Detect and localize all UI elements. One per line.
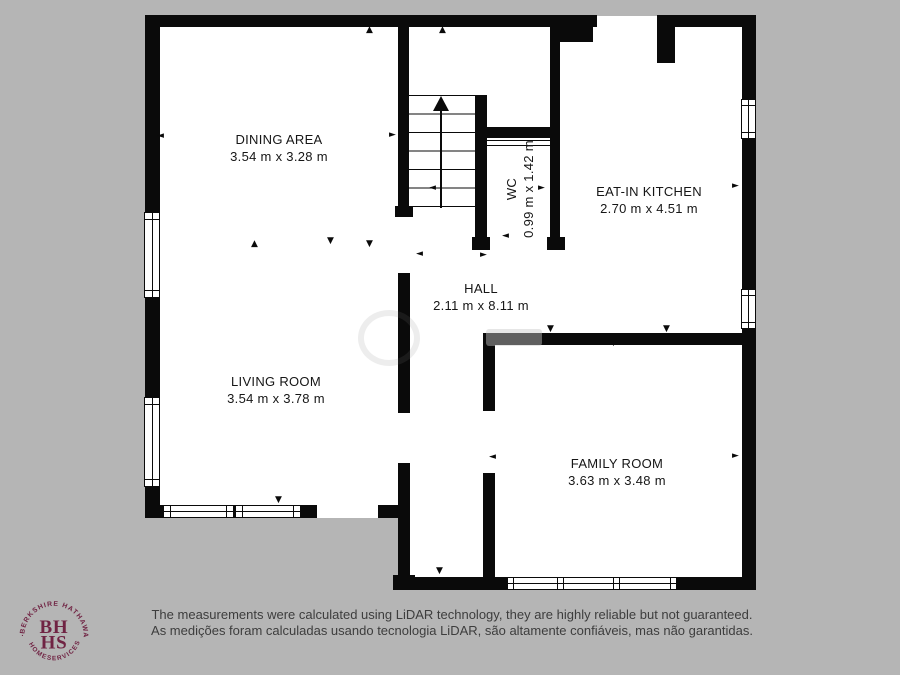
wall-wc-right [550,27,560,237]
interior-left-wing-door-gap [317,505,378,518]
opening-marker-down-icon: ▼ [366,240,373,249]
room-dimensions: 2.70 m x 4.51 m [596,200,702,217]
room-label-wc: WC 0.99 m x 1.42 m [503,140,537,238]
wall-wc-top [487,127,550,138]
wall-living-hall-divider-lower [398,463,410,577]
bhhs-logo: BERKSHIRE HATHAWAY HOMESERVICES · · BH H… [16,596,92,672]
room-name: HALL [433,280,529,297]
staircase [409,95,475,218]
room-label-living: LIVING ROOM 3.54 m x 3.78 m [227,373,325,407]
room-name: FAMILY ROOM [568,455,666,472]
room-label-kitchen: EAT-IN KITCHEN 2.70 m x 4.51 m [596,183,702,217]
opening-marker-left-icon: ◄ [502,232,509,241]
room-dimensions: 3.63 m x 3.48 m [568,472,666,489]
opening-marker-up-icon: ▲ [366,26,373,35]
opening-marker-right-icon: ► [538,184,545,193]
room-dimensions: 3.54 m x 3.28 m [230,148,328,165]
room-label-hall: HALL 2.11 m x 8.11 m [433,280,529,314]
wall-stub-kitchen-top [657,27,675,63]
opening-marker-right-icon: ► [389,131,396,140]
room-dimensions: 2.11 m x 8.11 m [433,297,529,314]
wall-living-hall-divider-foot [393,575,415,588]
opening-marker-down-icon: ▼ [547,325,554,334]
room-dimensions: 3.54 m x 3.78 m [227,390,325,407]
watermark-text-blob [486,329,542,346]
window-right-kitchen-lower [741,289,756,329]
wall-family-left-lower [483,473,495,577]
opening-marker-down-icon: ▼ [610,339,617,348]
opening-marker-down-icon: ▼ [436,567,443,576]
window-family-bottom [507,577,677,590]
opening-marker-up-icon: ▲ [251,240,258,249]
opening-marker-right-icon: ► [480,251,487,260]
room-name: WC [503,140,520,238]
top-wall-opening [597,16,657,27]
stairs-up-arrow-icon [433,96,449,111]
opening-marker-right-icon: ► [732,182,739,191]
wall-dining-stairs-divider [398,27,409,217]
opening-marker-down-icon: ▼ [327,237,334,246]
opening-marker-left-icon: ◄ [157,132,164,141]
window-left-upper [144,212,160,298]
measurement-disclaimer: The measurements were calculated using L… [151,607,753,639]
room-label-family: FAMILY ROOM 3.63 m x 3.48 m [568,455,666,489]
disclaimer-line-en: The measurements were calculated using L… [151,607,753,623]
logo-monogram-bottom: HS [41,632,68,653]
interior-left-wing [158,26,410,505]
opening-marker-down-icon: ▼ [663,325,670,334]
opening-marker-left-icon: ◄ [489,453,496,462]
wall-family-left-upper [483,340,495,411]
room-name: DINING AREA [230,131,328,148]
window-left-lower [144,397,160,487]
opening-marker-left-icon: ◄ [429,184,436,193]
opening-marker-up-icon: ▲ [439,26,446,35]
disclaimer-line-pt: As medições foram calculadas usando tecn… [151,623,753,639]
window-living-bottom-1 [163,505,234,518]
room-name: EAT-IN KITCHEN [596,183,702,200]
wall-wc-right-top-flare [550,27,593,42]
opening-marker-down-icon: ▼ [275,496,282,505]
wall-wc-right-foot [547,237,565,250]
room-name: LIVING ROOM [227,373,325,390]
stairs-up-arrow-stem [440,111,442,208]
room-label-dining: DINING AREA 3.54 m x 3.28 m [230,131,328,165]
opening-marker-left-icon: ◄ [416,250,423,259]
window-right-kitchen-upper [741,99,756,139]
wall-stairs-right-foot [472,237,490,250]
room-dimensions: 0.99 m x 1.42 m [520,140,537,238]
logo-dot-left: · [21,631,24,640]
window-living-bottom-2 [235,505,301,518]
opening-marker-right-icon: ► [732,452,739,461]
wall-stairs-right [475,95,487,237]
floor-plan: DINING AREA 3.54 m x 3.28 m EAT-IN KITCH… [0,0,900,675]
logo-dot-right: · [84,631,87,640]
watermark-icon [358,310,420,366]
